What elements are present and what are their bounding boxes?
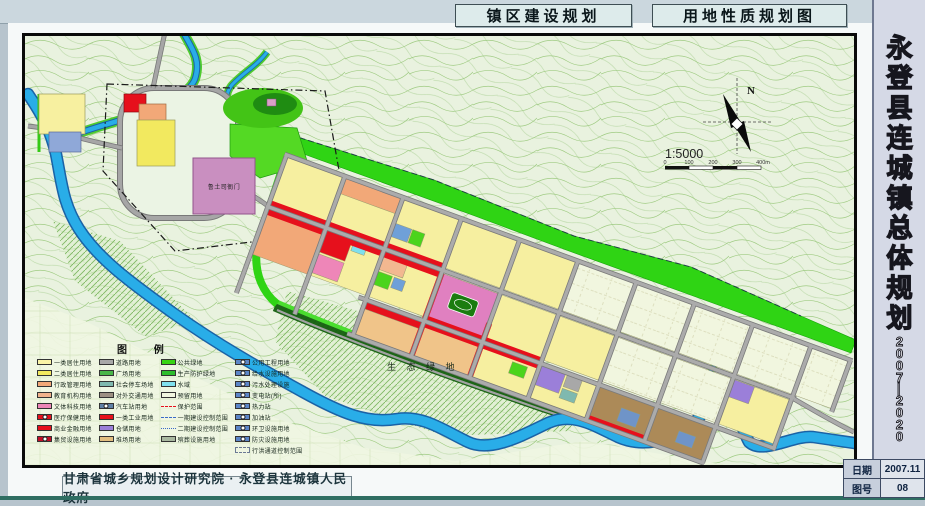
legend-swatch [161, 381, 176, 387]
legend-item: 殡葬设施用地 [161, 435, 228, 444]
legend-label: 教育机构用地 [54, 391, 92, 400]
legend-swatch [99, 403, 114, 409]
legend-label: 堆场用地 [116, 435, 141, 444]
sidebar-period-char: — [894, 383, 905, 396]
sidebar-vertical-title: 永登县连城镇总体规划 [874, 33, 925, 333]
legend-swatch [235, 381, 250, 387]
legend-label: 给水设施用地 [252, 369, 290, 378]
sidebar-period-char: 0 [896, 431, 903, 443]
legend-swatch [37, 425, 52, 431]
legend-item: 道路用地 [99, 358, 154, 367]
legend-title: 图 例 [117, 341, 176, 356]
svg-text:0: 0 [663, 160, 666, 166]
legend-item: 保护范围 [161, 402, 228, 411]
sidebar-title-char: 规 [886, 273, 912, 303]
legend: 一类居住用地二类居住用地行政管理用地教育机构用地文体科技用地医疗保健用地商业金融… [37, 358, 302, 454]
legend-swatch-symbol [42, 415, 47, 420]
legend-label: 污水处理设施 [252, 380, 290, 389]
legend-item: 加油站 [235, 413, 302, 422]
legend-swatch [37, 436, 52, 442]
legend-item: 公用工程用地 [235, 358, 302, 367]
date-label: 日期 [844, 460, 880, 478]
legend-column: 公共绿地生产防护绿地水域预留用地保护范围一期建设控制范围二期建设控制范围殡葬设施… [161, 358, 228, 454]
legend-item: 给水设施用地 [235, 369, 302, 378]
legend-item: 公共绿地 [161, 358, 228, 367]
sidebar-title-char: 划 [886, 303, 912, 333]
legend-item: 医疗保健用地 [37, 413, 92, 422]
legend-item: 集贸设施用地 [37, 435, 92, 444]
legend-swatch [37, 392, 52, 398]
legend-label: 一期建设控制范围 [178, 413, 228, 422]
legend-item: 二类居住用地 [37, 369, 92, 378]
legend-item: 行洪通道控制范围 [235, 446, 302, 455]
legend-swatch [161, 359, 176, 365]
svg-text:100: 100 [684, 160, 693, 166]
legend-label: 变电站(所) [252, 391, 282, 400]
sidebar-title-char: 城 [886, 153, 912, 183]
legend-swatch-symbol [240, 404, 245, 409]
legend-label: 保护范围 [178, 402, 203, 411]
legend-label: 二类居住用地 [54, 369, 92, 378]
legend-label: 环卫设施用地 [252, 424, 290, 433]
legend-label: 仓储用地 [116, 424, 141, 433]
legend-swatch [99, 392, 114, 398]
legend-label: 广场用地 [116, 369, 141, 378]
legend-label: 社会停车场地 [116, 380, 154, 389]
title-sidebar: 永登县连城镇总体规划 2007—2020 [872, 0, 925, 500]
legend-swatch [99, 370, 114, 376]
legend-swatch-symbol [240, 426, 245, 431]
legend-swatch [99, 425, 114, 431]
sidebar-title-char: 永 [886, 33, 912, 63]
legend-label: 加油站 [252, 413, 271, 422]
legend-item: 一类工业用地 [99, 413, 154, 422]
sidebar-title-char: 连 [886, 123, 912, 153]
legend-swatch-symbol [240, 382, 245, 387]
legend-swatch [235, 392, 250, 398]
bottom-strip [0, 496, 925, 500]
legend-swatch [235, 447, 250, 453]
legend-swatch [99, 359, 114, 365]
legend-item: 二期建设控制范围 [161, 424, 228, 433]
legend-label: 水域 [178, 380, 191, 389]
legend-item: 预留用地 [161, 391, 228, 400]
legend-label: 行洪通道控制范围 [252, 446, 302, 455]
legend-label: 二期建设控制范围 [178, 424, 228, 433]
legend-item: 文体科技用地 [37, 402, 92, 411]
legend-label: 预留用地 [178, 391, 203, 400]
sidebar-title-char: 县 [886, 93, 912, 123]
legend-swatch [235, 436, 250, 442]
legend-swatch [161, 370, 176, 376]
legend-label: 道路用地 [116, 358, 141, 367]
legend-item: 行政管理用地 [37, 380, 92, 389]
legend-label: 对外交通用地 [116, 391, 154, 400]
legend-swatch [99, 381, 114, 387]
legend-label: 生产防护绿地 [178, 369, 216, 378]
north-label: N [747, 85, 755, 97]
legend-label: 殡葬设施用地 [178, 435, 216, 444]
legend-swatch [99, 414, 114, 420]
legend-label: 热力站 [252, 402, 271, 411]
legend-swatch-symbol [42, 437, 47, 442]
legend-label: 集贸设施用地 [54, 435, 92, 444]
legend-swatch-symbol [240, 437, 245, 442]
legend-item: 一期建设控制范围 [161, 413, 228, 422]
legend-item: 社会停车场地 [99, 380, 154, 389]
legend-label: 防灾设施用地 [252, 435, 290, 444]
legend-label: 商业金融用地 [54, 424, 92, 433]
legend-label: 一类工业用地 [116, 413, 154, 422]
legend-item: 环卫设施用地 [235, 424, 302, 433]
legend-item: 仓储用地 [99, 424, 154, 433]
svg-text:300: 300 [732, 160, 741, 166]
legend-swatch-symbol [240, 360, 245, 365]
date-value: 2007.11 [881, 460, 924, 478]
map-frame: 鲁土司衙门 [22, 33, 857, 468]
eco-area-label: 生 态 绿 地 [387, 361, 459, 372]
legend-label: 公用工程用地 [252, 358, 290, 367]
legend-item: 汽车站用地 [99, 402, 154, 411]
legend-swatch [161, 392, 176, 398]
legend-swatch [235, 403, 250, 409]
sheet-value: 08 [881, 479, 924, 497]
legend-column: 一类居住用地二类居住用地行政管理用地教育机构用地文体科技用地医疗保健用地商业金融… [37, 358, 92, 454]
sidebar-period: 2007—2020 [874, 336, 925, 443]
info-table: 日期 2007.11 图号 08 [843, 459, 925, 498]
svg-text:400m: 400m [756, 160, 770, 166]
legend-item: 生产防护绿地 [161, 369, 228, 378]
sidebar-title-char: 登 [886, 63, 912, 93]
legend-swatch [37, 370, 52, 376]
legend-swatch [235, 370, 250, 376]
legend-label: 汽车站用地 [116, 402, 148, 411]
legend-swatch [37, 359, 52, 365]
legend-item: 防灾设施用地 [235, 435, 302, 444]
legend-swatch-symbol [240, 393, 245, 398]
legend-item: 商业金融用地 [37, 424, 92, 433]
legend-label: 文体科技用地 [54, 402, 92, 411]
legend-swatch-symbol [240, 371, 245, 376]
legend-item: 热力站 [235, 402, 302, 411]
legend-swatch [235, 425, 250, 431]
legend-item: 教育机构用地 [37, 391, 92, 400]
sheet-label: 图号 [844, 479, 880, 497]
legend-item: 广场用地 [99, 369, 154, 378]
map-title-left: 镇区建设规划 [455, 4, 632, 27]
legend-item: 水域 [161, 380, 228, 389]
legend-item: 一类居住用地 [37, 358, 92, 367]
legend-swatch-symbol [104, 404, 109, 409]
legend-item: 变电站(所) [235, 391, 302, 400]
legend-swatch-symbol [240, 415, 245, 420]
scale-text: 1:5000 [665, 147, 703, 161]
heritage-label: 鲁土司衙门 [208, 183, 241, 191]
organization-bar: 甘肃省城乡规划设计研究院 · 永登县连城镇人民政府 [62, 476, 352, 498]
legend-swatch [37, 403, 52, 409]
sidebar-title-char: 镇 [886, 183, 912, 213]
legend-label: 行政管理用地 [54, 380, 92, 389]
legend-item: 污水处理设施 [235, 380, 302, 389]
sidebar-title-char: 总 [886, 213, 912, 243]
legend-column: 公用工程用地给水设施用地污水处理设施变电站(所)热力站加油站环卫设施用地防灾设施… [235, 358, 302, 454]
legend-swatch [99, 436, 114, 442]
legend-swatch [161, 436, 176, 442]
legend-swatch [161, 406, 176, 407]
legend-column: 道路用地广场用地社会停车场地对外交通用地汽车站用地一类工业用地仓储用地堆场用地 [99, 358, 154, 454]
legend-swatch [161, 428, 176, 429]
legend-label: 一类居住用地 [54, 358, 92, 367]
legend-swatch [37, 381, 52, 387]
legend-label: 公共绿地 [178, 358, 203, 367]
legend-swatch [161, 417, 176, 418]
legend-item: 对外交通用地 [99, 391, 154, 400]
legend-item: 堆场用地 [99, 435, 154, 444]
sidebar-title-char: 体 [886, 243, 912, 273]
svg-text:200: 200 [708, 160, 717, 166]
legend-label: 医疗保健用地 [54, 413, 92, 422]
legend-swatch [235, 359, 250, 365]
map-title-right: 用地性质规划图 [652, 4, 847, 27]
legend-swatch [235, 414, 250, 420]
legend-swatch [37, 414, 52, 420]
